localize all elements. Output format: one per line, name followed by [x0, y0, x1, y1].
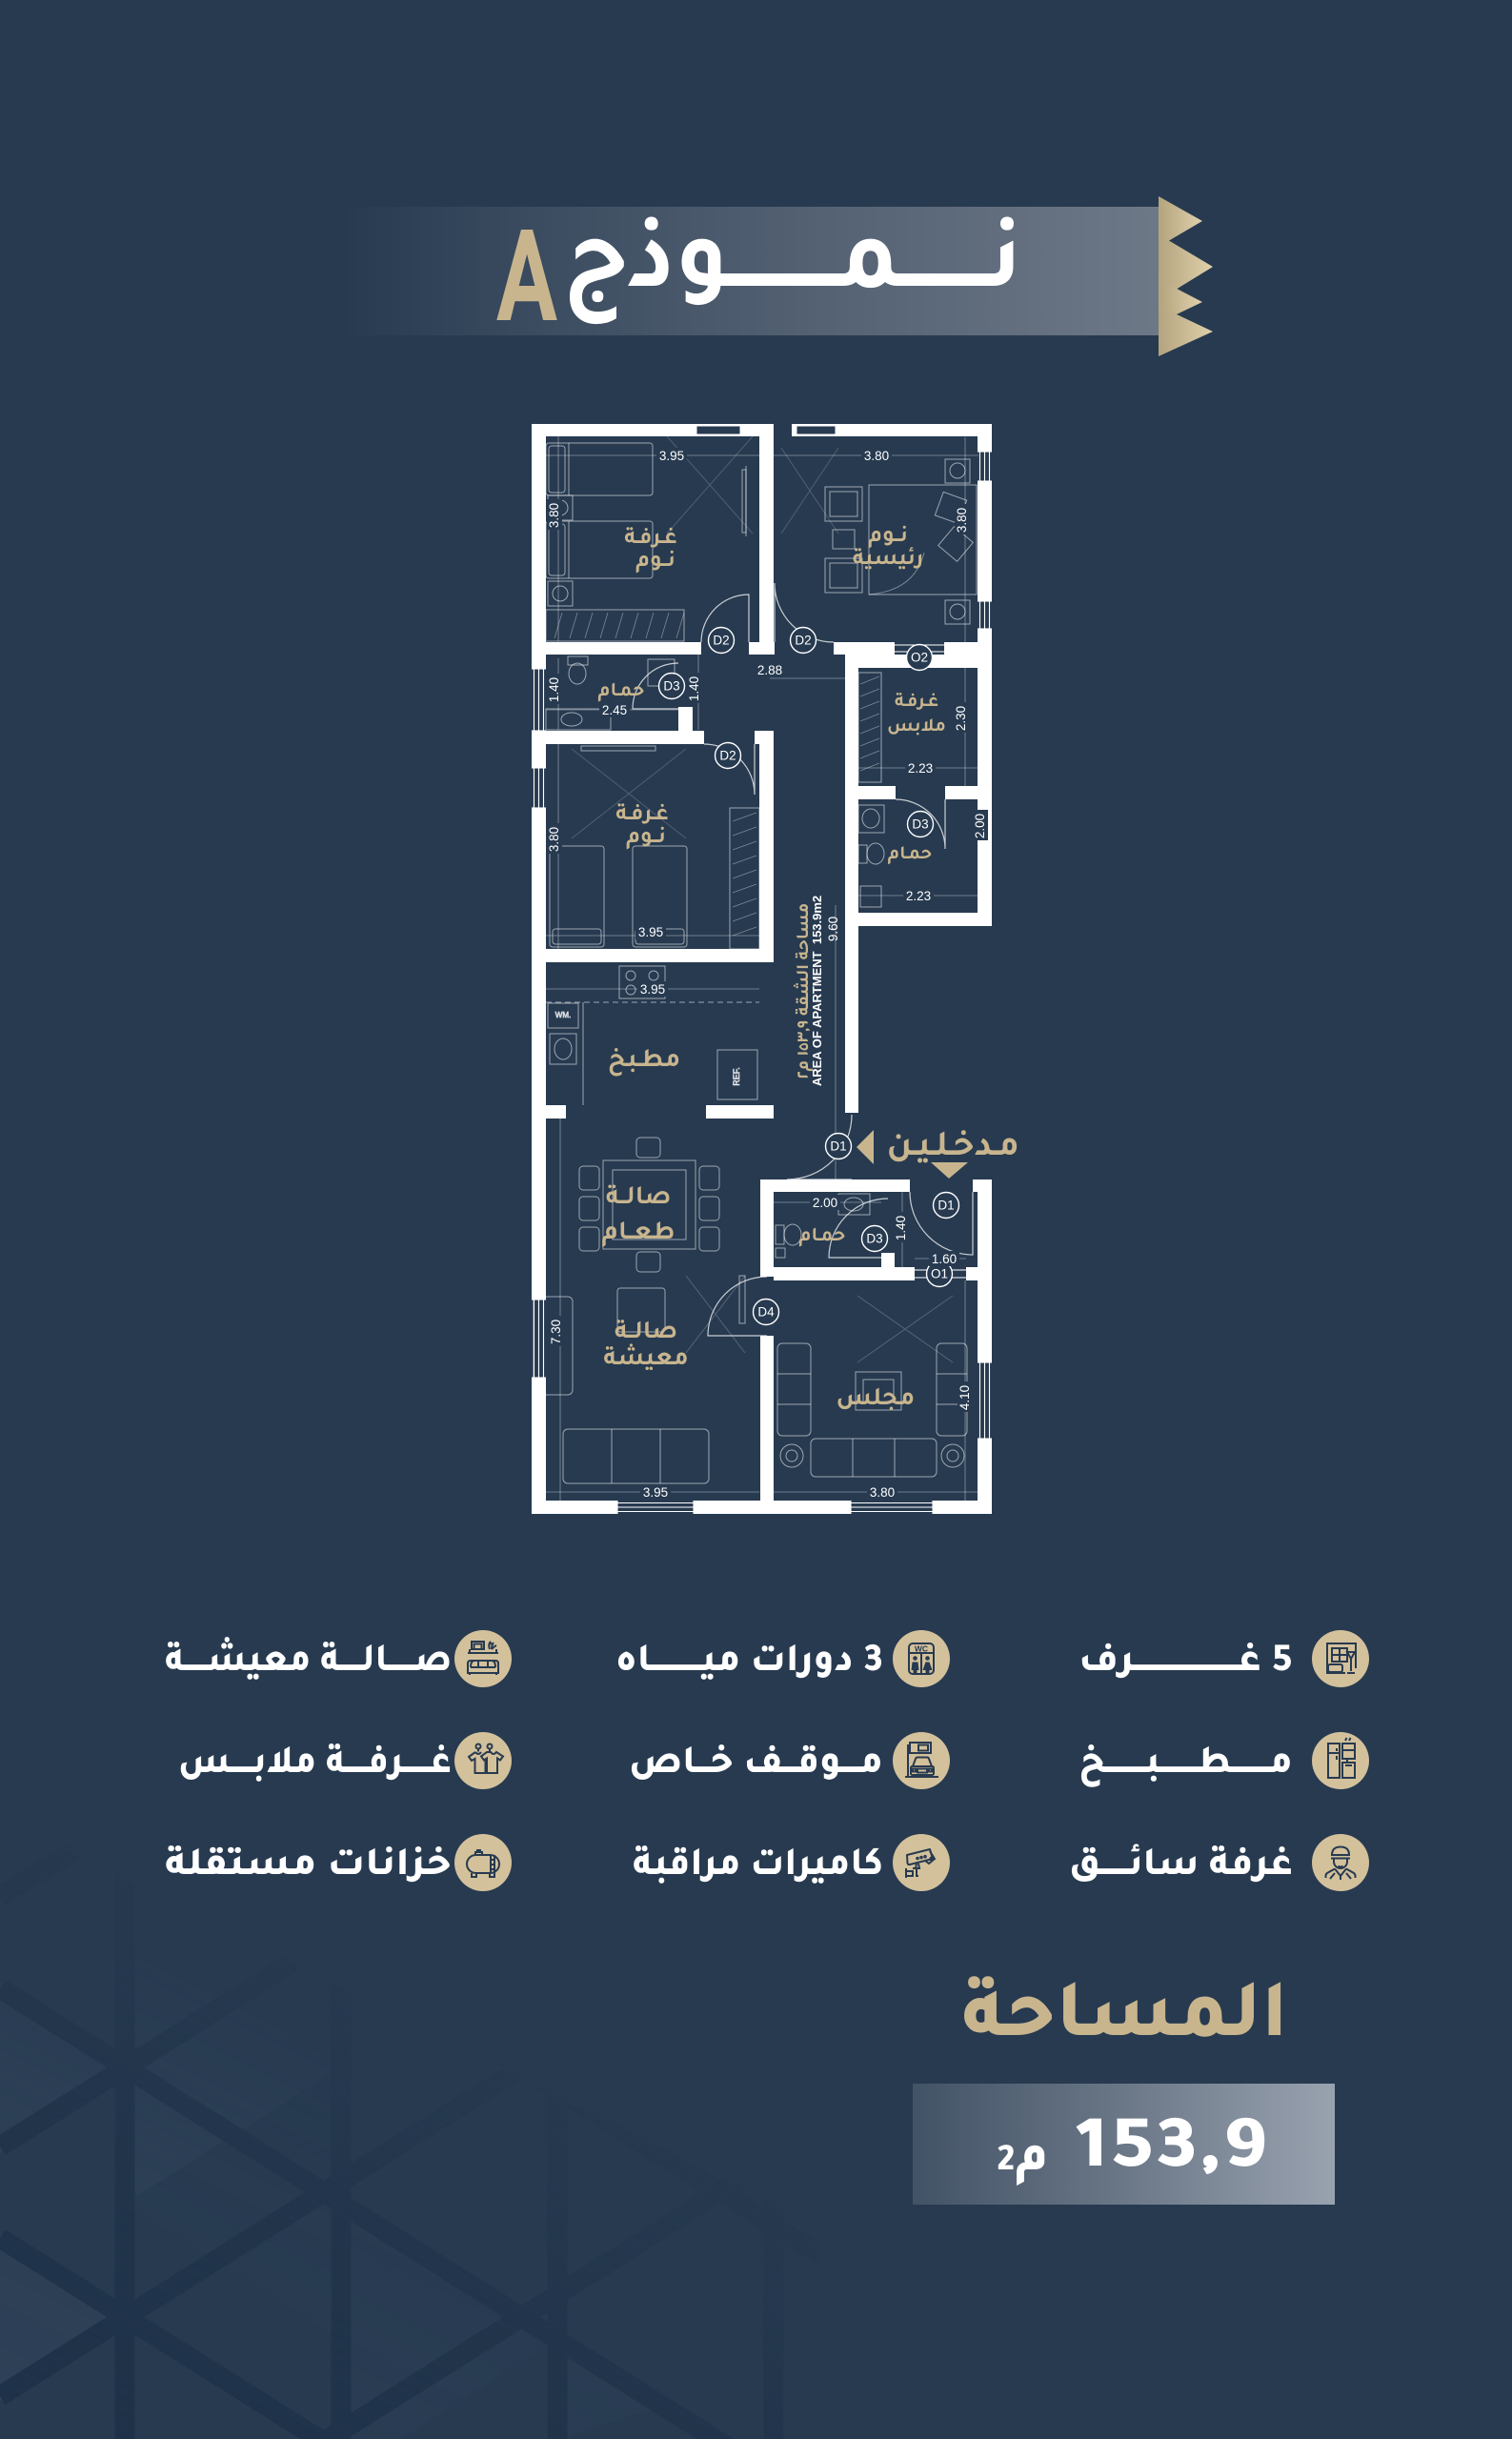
svg-text:3.80: 3.80	[547, 827, 561, 852]
svg-text:WM.: WM.	[555, 1011, 571, 1019]
svg-text:D3: D3	[912, 817, 928, 832]
svg-text:2.23: 2.23	[908, 761, 933, 776]
svg-text:7.30: 7.30	[549, 1320, 563, 1344]
svg-text:3.95: 3.95	[643, 1485, 668, 1500]
svg-text:D2: D2	[719, 749, 736, 763]
svg-text:3.80: 3.80	[864, 449, 889, 463]
svg-text:AREA OF APARTMENT 153.9m2: AREA OF APARTMENT 153.9m2	[810, 896, 824, 1086]
svg-text:3.80: 3.80	[870, 1485, 895, 1500]
svg-text:D1: D1	[937, 1199, 954, 1213]
svg-text:D3: D3	[663, 679, 679, 694]
svg-text:D3: D3	[866, 1232, 882, 1246]
svg-text:3.95: 3.95	[640, 982, 665, 997]
svg-text:O1: O1	[931, 1267, 948, 1281]
svg-text:WC: WC	[915, 1644, 928, 1654]
svg-text:2.30: 2.30	[954, 706, 968, 731]
svg-text:3.80: 3.80	[955, 508, 969, 533]
svg-text:9.60: 9.60	[826, 917, 840, 941]
svg-text:REF.: REF.	[732, 1067, 741, 1086]
svg-text:2.00: 2.00	[813, 1196, 837, 1210]
svg-text:2.23: 2.23	[906, 889, 931, 903]
svg-text:D1: D1	[830, 1139, 846, 1154]
svg-text:2.45: 2.45	[602, 703, 627, 717]
svg-text:O2: O2	[911, 651, 928, 665]
svg-text:1.40: 1.40	[894, 1216, 908, 1240]
svg-text:1.60: 1.60	[932, 1252, 957, 1266]
svg-text:2.00: 2.00	[973, 814, 987, 838]
svg-text:1.40: 1.40	[547, 677, 561, 702]
svg-text:D2: D2	[795, 634, 811, 648]
svg-text:1.40: 1.40	[687, 676, 701, 701]
svg-text:D4: D4	[757, 1305, 775, 1320]
svg-text:3.80: 3.80	[547, 503, 561, 528]
svg-text:3.95: 3.95	[638, 925, 663, 939]
svg-text:4.10: 4.10	[958, 1385, 972, 1410]
svg-text:D2: D2	[713, 634, 729, 648]
svg-text:3.95: 3.95	[659, 449, 684, 463]
svg-text:2.88: 2.88	[757, 663, 782, 677]
